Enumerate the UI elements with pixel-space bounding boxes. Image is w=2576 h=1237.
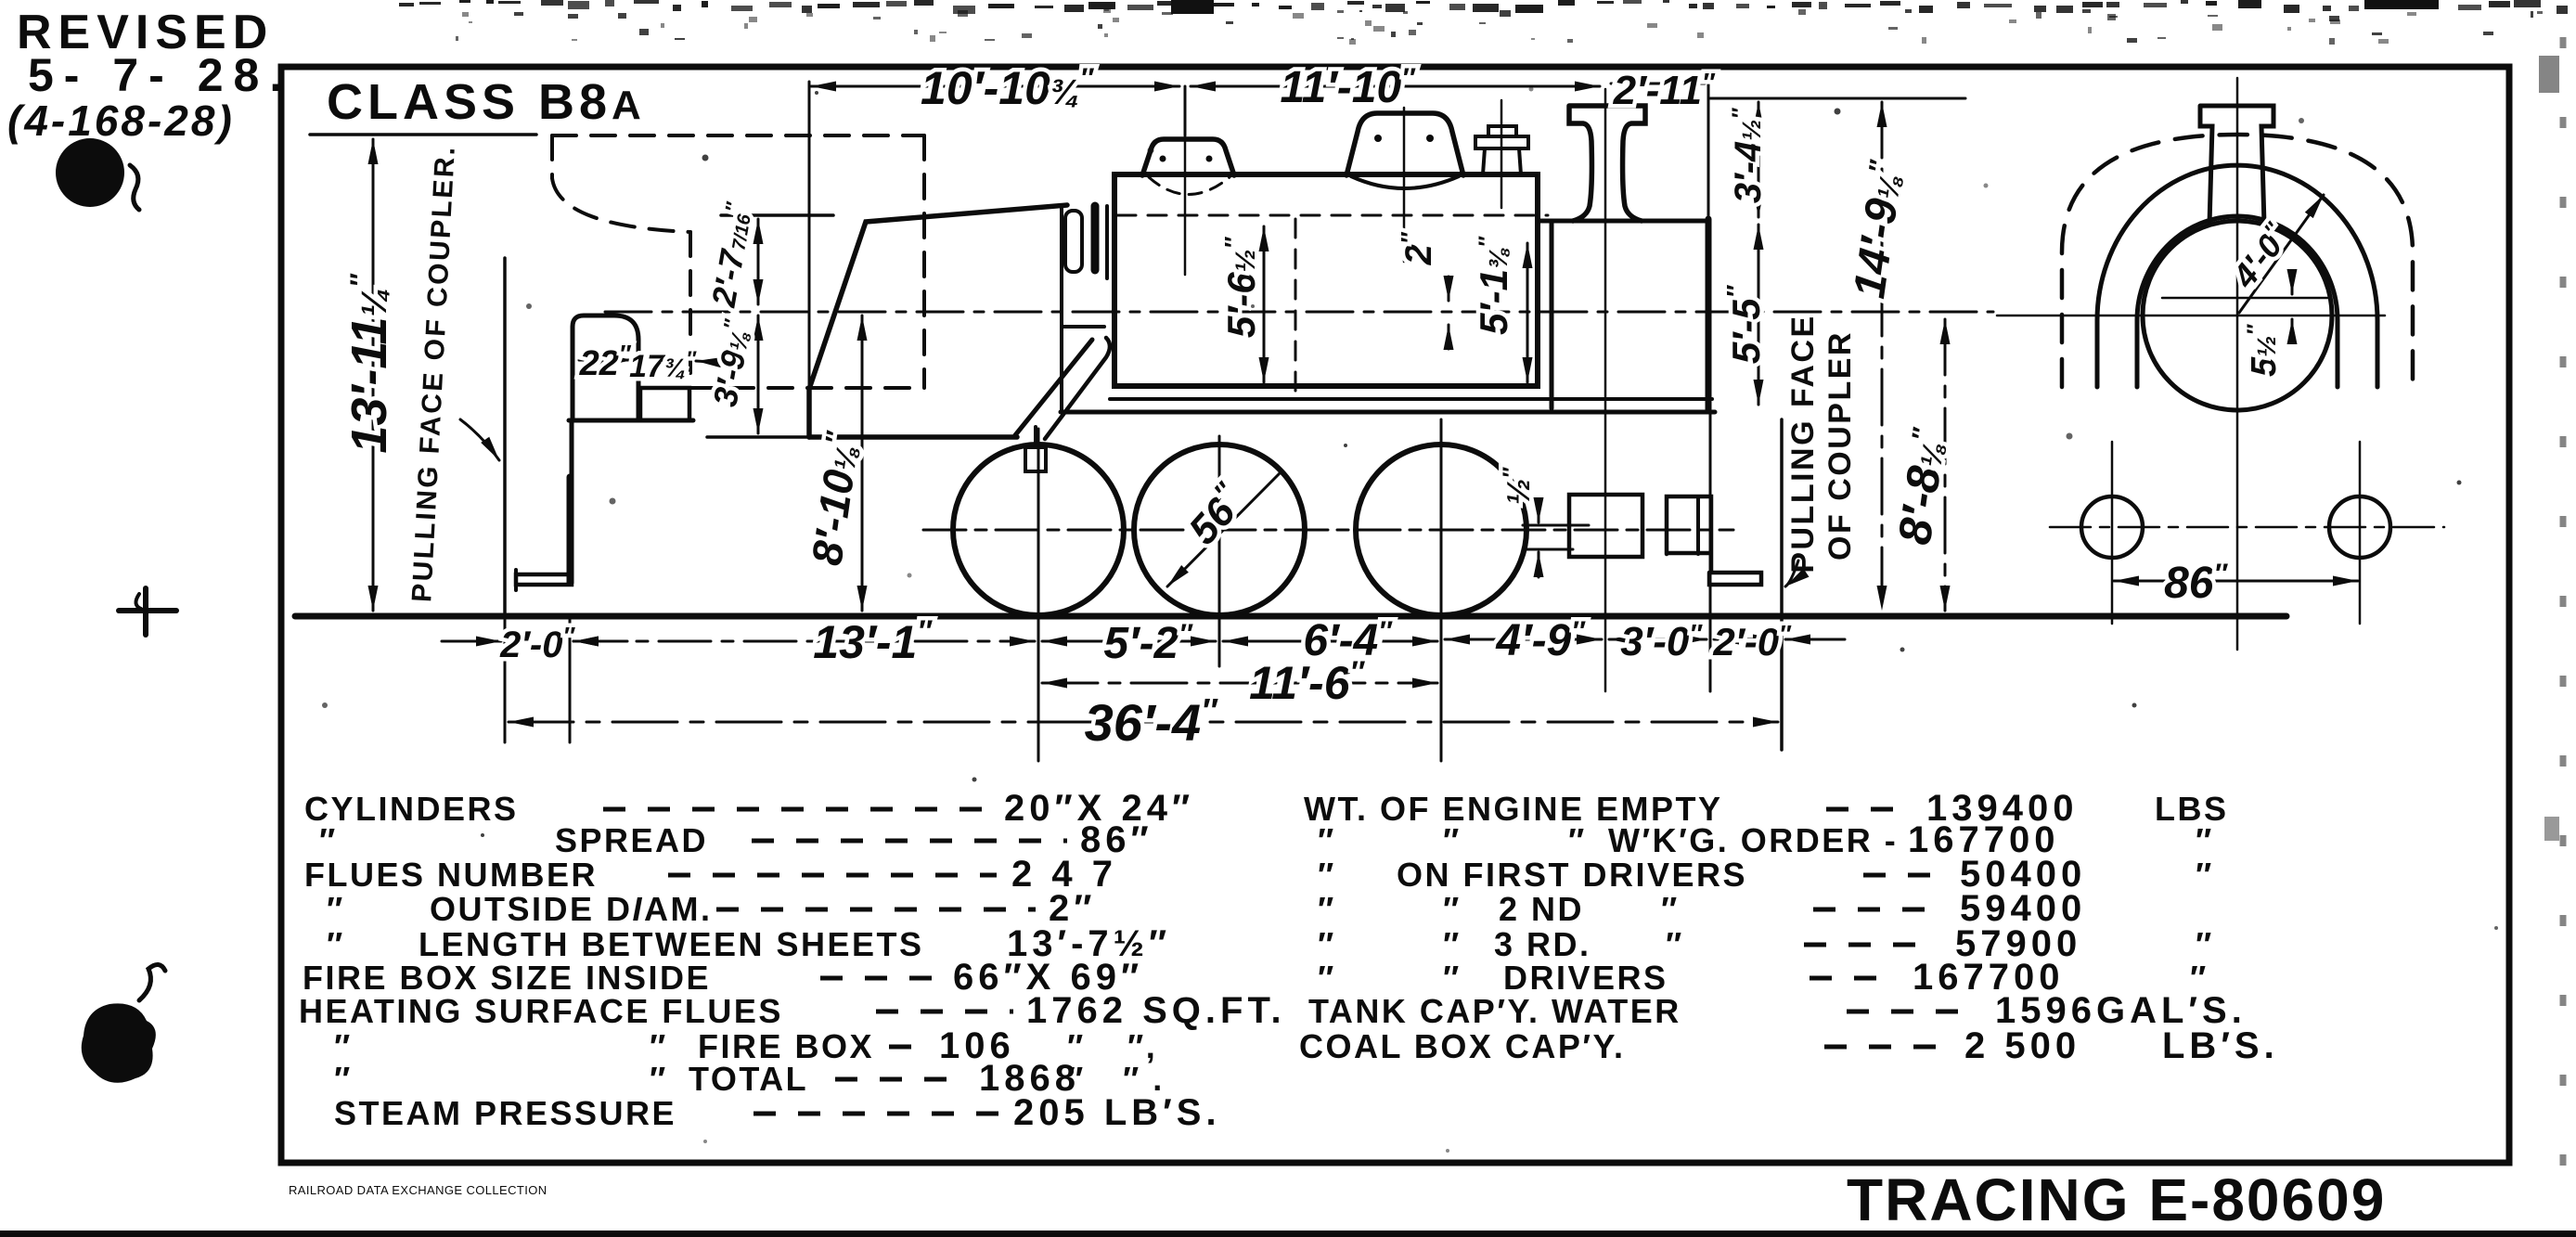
svg-text:5- 7- 28.: 5- 7- 28. (28, 49, 292, 101)
svg-text:″: ″ (1318, 925, 1336, 963)
svg-text:2 500: 2 500 (1964, 1025, 2080, 1066)
svg-text:COAL BOX CAP′Y.: COAL BOX CAP′Y. (1299, 1027, 1626, 1065)
svg-text:DRIVERS: DRIVERS (1503, 959, 1668, 997)
svg-text:″: ″ (2196, 856, 2214, 894)
svg-text:PULLING FACE: PULLING FACE (1785, 314, 1821, 573)
svg-text:CLASS B8A: CLASS B8A (327, 74, 646, 130)
svg-text:LB′S.: LB′S. (2162, 1025, 2279, 1066)
svg-text:″: ″ (319, 821, 338, 859)
svg-text:″: ″ (1318, 821, 1336, 859)
svg-text:11′-6″: 11′-6″ (1249, 655, 1365, 709)
svg-text:RAILROAD DATA EXCHANGE COLL: RAILROAD DATA EXCHANGE COLLECTION (289, 1183, 547, 1197)
svg-text:″: ″ (2196, 925, 2214, 963)
svg-text:TRACING E-80609: TRACING E-80609 (1847, 1166, 2386, 1233)
svg-text:HEATING SURFACE FLUES: HEATING SURFACE FLUES (299, 992, 783, 1030)
svg-text:OUTSIDE DIAM.: OUTSIDE DIAM. (430, 890, 713, 928)
svg-text:″: ″ (1443, 925, 1462, 963)
svg-text:LENGTH BETWEEN SHEETS: LENGTH BETWEEN SHEETS (419, 925, 924, 963)
svg-text:11′-10″: 11′-10″ (1280, 63, 1416, 112)
svg-text:″: ″ (1318, 959, 1336, 997)
svg-text:″: ″ (2196, 821, 2214, 859)
svg-text:″: ″ (334, 1060, 353, 1098)
svg-text:205 LB′S.: 205 LB′S. (1013, 1092, 1221, 1133)
svg-text:2 ND: 2 ND (1499, 890, 1584, 928)
svg-text:ON FIRST DRIVERS: ON FIRST DRIVERS (1397, 856, 1747, 894)
svg-text:FIRE BOX SIZE INSIDE: FIRE BOX SIZE INSIDE (303, 959, 711, 997)
svg-text:″: ″ (650, 1060, 668, 1098)
svg-text:STEAM PRESSURE: STEAM PRESSURE (334, 1094, 676, 1132)
svg-text:″: ″ (1443, 890, 1462, 928)
svg-text:″: ″ (1661, 890, 1680, 928)
svg-text:″: ″ (1568, 821, 1587, 859)
svg-text:SPREAD: SPREAD (555, 821, 708, 859)
svg-text:13′-1″: 13′-1″ (813, 614, 933, 668)
svg-text:(4-168-28): (4-168-28) (7, 97, 235, 145)
svg-text:3 RD.: 3 RD. (1494, 925, 1591, 963)
svg-text:W′K′G. ORDER -: W′K′G. ORDER - (1608, 821, 1898, 859)
svg-text:OF COUPLER: OF COUPLER (1823, 330, 1858, 561)
svg-text:″: ″ (1318, 890, 1336, 928)
svg-text:FLUES NUMBER: FLUES NUMBER (304, 856, 598, 894)
svg-text:″: ″ (1443, 821, 1462, 859)
svg-text:″: ″ (327, 890, 345, 928)
svg-text:″: ″ (1443, 959, 1462, 997)
svg-text:36′-4″: 36′-4″ (1085, 691, 1219, 752)
svg-text:LBS: LBS (2155, 790, 2229, 828)
svg-text:2′-11″: 2′-11″ (1613, 68, 1716, 113)
svg-text:″: ″ (327, 925, 345, 963)
svg-text:1762 SQ.FT.: 1762 SQ.FT. (1026, 990, 1286, 1031)
svg-text:″: ″ (1318, 856, 1336, 894)
svg-text:″: ″ (1666, 925, 1684, 963)
svg-text:TOTAL: TOTAL (689, 1060, 808, 1098)
svg-text:TANK CAP′Y. WATER: TANK CAP′Y. WATER (1308, 992, 1681, 1030)
